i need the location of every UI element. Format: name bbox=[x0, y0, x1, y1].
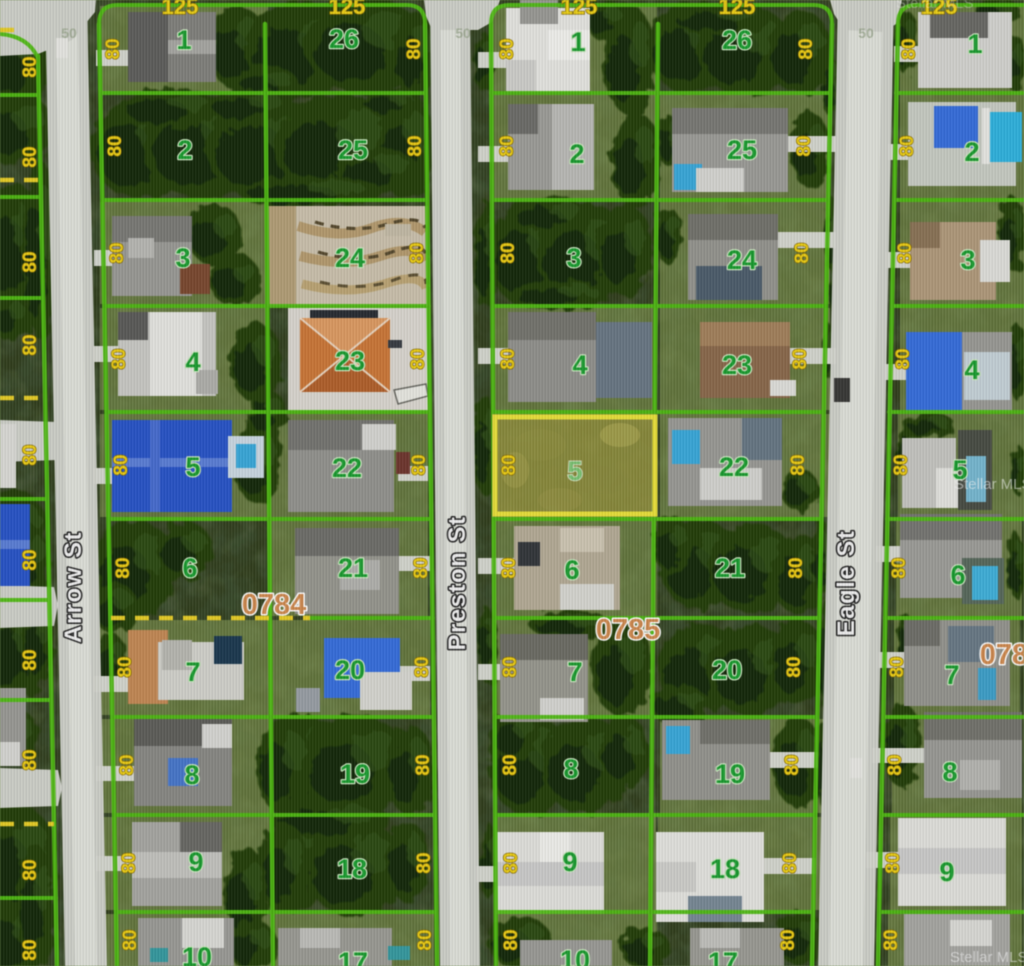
svg-text:1: 1 bbox=[570, 27, 585, 57]
svg-text:0785: 0785 bbox=[596, 614, 661, 646]
svg-text:80: 80 bbox=[413, 754, 434, 775]
svg-text:80: 80 bbox=[792, 242, 813, 263]
svg-text:18: 18 bbox=[337, 854, 367, 884]
svg-text:80: 80 bbox=[408, 348, 429, 369]
svg-text:80: 80 bbox=[891, 454, 912, 475]
svg-text:80: 80 bbox=[782, 754, 803, 775]
svg-text:19: 19 bbox=[340, 759, 370, 789]
svg-text:80: 80 bbox=[500, 754, 521, 775]
svg-text:4: 4 bbox=[185, 347, 200, 377]
svg-text:80: 80 bbox=[889, 557, 910, 578]
svg-text:80: 80 bbox=[899, 38, 920, 59]
svg-text:10: 10 bbox=[182, 942, 212, 966]
svg-text:80: 80 bbox=[20, 251, 41, 272]
svg-text:3: 3 bbox=[960, 245, 975, 275]
svg-text:1: 1 bbox=[176, 25, 191, 55]
svg-text:21: 21 bbox=[715, 553, 745, 583]
svg-text:26: 26 bbox=[722, 25, 752, 55]
svg-text:80: 80 bbox=[404, 38, 425, 59]
svg-text:24: 24 bbox=[727, 245, 757, 275]
svg-text:2: 2 bbox=[569, 139, 584, 169]
svg-text:80: 80 bbox=[105, 135, 126, 156]
svg-text:1: 1 bbox=[967, 29, 982, 59]
svg-text:80: 80 bbox=[501, 852, 522, 873]
svg-text:80: 80 bbox=[107, 242, 128, 263]
svg-text:2: 2 bbox=[964, 137, 979, 167]
svg-text:80: 80 bbox=[412, 656, 433, 677]
svg-text:80: 80 bbox=[414, 852, 435, 873]
svg-text:80: 80 bbox=[893, 348, 914, 369]
svg-text:50: 50 bbox=[455, 25, 471, 41]
svg-text:125: 125 bbox=[162, 0, 199, 19]
svg-text:80: 80 bbox=[20, 444, 41, 465]
svg-text:80: 80 bbox=[497, 135, 518, 156]
svg-text:4: 4 bbox=[964, 355, 979, 385]
svg-text:80: 80 bbox=[498, 242, 519, 263]
svg-text:80: 80 bbox=[499, 454, 520, 475]
svg-text:80: 80 bbox=[788, 454, 809, 475]
svg-text:80: 80 bbox=[780, 852, 801, 873]
svg-text:23: 23 bbox=[722, 350, 752, 380]
svg-text:5: 5 bbox=[567, 456, 582, 486]
svg-text:80: 80 bbox=[796, 38, 817, 59]
svg-text:2: 2 bbox=[177, 135, 192, 165]
svg-text:125: 125 bbox=[561, 0, 598, 19]
svg-text:80: 80 bbox=[897, 135, 918, 156]
svg-text:22: 22 bbox=[332, 453, 362, 483]
svg-text:20: 20 bbox=[712, 655, 742, 685]
svg-text:125: 125 bbox=[329, 0, 366, 19]
svg-text:7: 7 bbox=[944, 660, 959, 690]
svg-text:3: 3 bbox=[566, 243, 581, 273]
svg-text:21: 21 bbox=[338, 553, 368, 583]
svg-text:20: 20 bbox=[335, 655, 365, 685]
svg-text:80: 80 bbox=[784, 656, 805, 677]
svg-text:Preston St: Preston St bbox=[444, 515, 471, 650]
svg-text:80: 80 bbox=[20, 859, 41, 880]
svg-text:80: 80 bbox=[887, 656, 908, 677]
svg-text:80: 80 bbox=[790, 348, 811, 369]
svg-text:80: 80 bbox=[895, 242, 916, 263]
svg-text:80: 80 bbox=[20, 749, 41, 770]
svg-text:0784: 0784 bbox=[980, 639, 1024, 671]
svg-text:80: 80 bbox=[409, 454, 430, 475]
svg-text:26: 26 bbox=[329, 24, 359, 54]
svg-text:80: 80 bbox=[497, 38, 518, 59]
svg-text:17: 17 bbox=[708, 947, 738, 966]
svg-text:6: 6 bbox=[564, 555, 579, 585]
svg-text:0784: 0784 bbox=[242, 589, 307, 621]
svg-text:80: 80 bbox=[499, 557, 520, 578]
svg-text:80: 80 bbox=[500, 656, 521, 677]
svg-text:9: 9 bbox=[562, 847, 577, 877]
svg-text:80: 80 bbox=[786, 557, 807, 578]
svg-text:3: 3 bbox=[175, 243, 190, 273]
svg-text:80: 80 bbox=[778, 929, 799, 950]
svg-text:80: 80 bbox=[20, 939, 41, 960]
svg-text:22: 22 bbox=[719, 452, 749, 482]
svg-text:8: 8 bbox=[184, 760, 199, 790]
svg-text:80: 80 bbox=[20, 334, 41, 355]
svg-text:18: 18 bbox=[710, 854, 740, 884]
svg-text:80: 80 bbox=[113, 557, 134, 578]
svg-text:80: 80 bbox=[405, 135, 426, 156]
svg-text:80: 80 bbox=[501, 929, 522, 950]
svg-text:10: 10 bbox=[560, 945, 590, 966]
svg-text:50: 50 bbox=[858, 25, 874, 41]
svg-text:80: 80 bbox=[115, 656, 136, 677]
svg-text:80: 80 bbox=[109, 348, 130, 369]
svg-text:6: 6 bbox=[182, 553, 197, 583]
svg-text:5: 5 bbox=[185, 452, 200, 482]
svg-text:Stellar MLS: Stellar MLS bbox=[950, 949, 1024, 966]
svg-text:80: 80 bbox=[120, 929, 141, 950]
svg-text:17: 17 bbox=[338, 947, 368, 966]
svg-text:25: 25 bbox=[727, 135, 757, 165]
svg-text:4: 4 bbox=[572, 350, 587, 380]
svg-text:80: 80 bbox=[498, 348, 519, 369]
svg-text:80: 80 bbox=[103, 38, 124, 59]
svg-text:7: 7 bbox=[567, 657, 582, 687]
svg-text:Stellar MLS: Stellar MLS bbox=[896, 0, 974, 12]
svg-text:80: 80 bbox=[883, 852, 904, 873]
svg-text:8: 8 bbox=[942, 757, 957, 787]
svg-text:6: 6 bbox=[950, 560, 965, 590]
svg-text:80: 80 bbox=[20, 549, 41, 570]
svg-text:9: 9 bbox=[188, 847, 203, 877]
svg-text:9: 9 bbox=[939, 857, 954, 887]
svg-text:80: 80 bbox=[885, 754, 906, 775]
svg-text:80: 80 bbox=[20, 56, 41, 77]
svg-text:7: 7 bbox=[185, 657, 200, 687]
svg-text:25: 25 bbox=[338, 135, 368, 165]
svg-text:19: 19 bbox=[715, 759, 745, 789]
svg-text:8: 8 bbox=[563, 754, 578, 784]
svg-text:80: 80 bbox=[119, 852, 140, 873]
svg-text:80: 80 bbox=[411, 557, 432, 578]
svg-text:80: 80 bbox=[20, 146, 41, 167]
svg-text:80: 80 bbox=[111, 454, 132, 475]
svg-text:80: 80 bbox=[20, 649, 41, 670]
svg-text:23: 23 bbox=[335, 346, 365, 376]
svg-text:Arrow St: Arrow St bbox=[60, 531, 87, 643]
svg-text:125: 125 bbox=[719, 0, 756, 19]
svg-text:80: 80 bbox=[407, 242, 428, 263]
svg-text:80: 80 bbox=[794, 135, 815, 156]
svg-text:80: 80 bbox=[881, 929, 902, 950]
svg-text:50: 50 bbox=[61, 25, 77, 41]
svg-text:Stellar MLS: Stellar MLS bbox=[954, 476, 1024, 493]
svg-text:24: 24 bbox=[335, 243, 365, 273]
svg-text:80: 80 bbox=[415, 929, 436, 950]
svg-text:80: 80 bbox=[117, 754, 138, 775]
svg-text:Eagle St: Eagle St bbox=[833, 530, 860, 637]
